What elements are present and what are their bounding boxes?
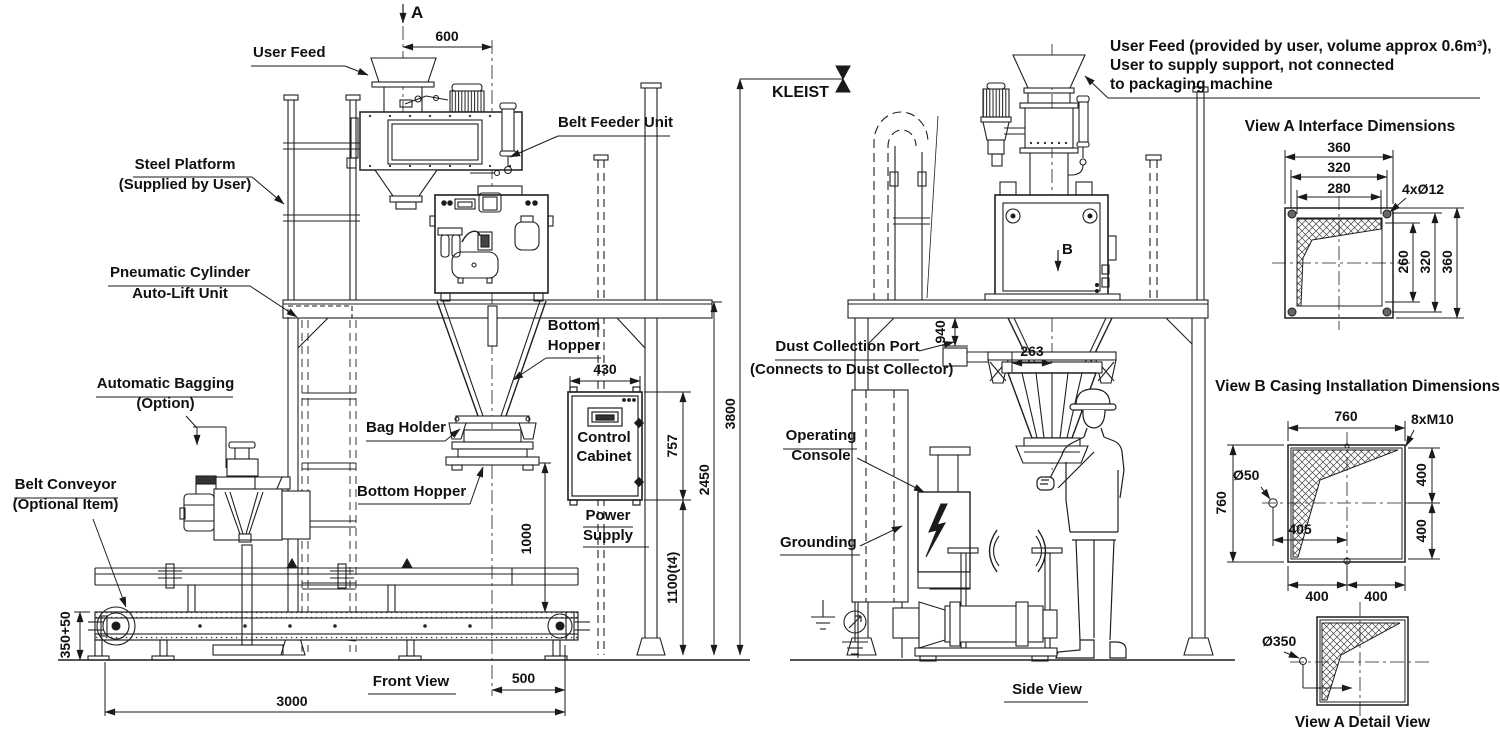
label-control-cabinet-2: Cabinet: [572, 449, 636, 466]
label-belt-feeder-unit: Belt Feeder Unit: [558, 115, 673, 132]
view-a-dim-320-right: 320: [1418, 232, 1434, 292]
dim-2450: 2450: [697, 440, 713, 520]
view-b-dim-bolt-holes: 8xM10: [1411, 412, 1454, 428]
view-a-dim-360-right: 360: [1440, 232, 1456, 292]
dim-263: 263: [1014, 344, 1050, 360]
section-marker-b: B: [1062, 242, 1073, 259]
view-b-dim-400-bl: 400: [1297, 589, 1337, 605]
label-pneumatic-1: Pneumatic Cylinder: [105, 265, 255, 282]
section-marker-a: A: [411, 3, 423, 22]
view-b-dim-760-left: 760: [1214, 473, 1230, 533]
front-view-caption: Front View: [366, 674, 456, 691]
dim-3000: 3000: [262, 694, 322, 710]
view-b-title: View B Casing Installation Dimensions: [1215, 378, 1500, 395]
view-a-dim-320-top: 320: [1319, 160, 1359, 176]
label-power-supply-2: Supply: [580, 528, 636, 545]
detail-dim-350: Ø350: [1262, 634, 1296, 650]
label-control-cabinet-1: Control: [572, 430, 636, 447]
view-b-dim-400-lower: 400: [1414, 501, 1430, 561]
dim-350-50: 350+50: [58, 595, 74, 675]
label-operating-console-1: Operating: [783, 428, 859, 445]
view-b-dim-400-br: 400: [1356, 589, 1396, 605]
label-steel-platform-2: (Supplied by User): [110, 177, 260, 194]
label-bottom-hopper-upper-2: Hopper: [546, 338, 602, 355]
dim-430: 430: [585, 362, 625, 378]
label-grounding: Grounding: [780, 535, 857, 552]
view-b-dim-400-upper: 400: [1414, 445, 1430, 505]
label-auto-bagging-1: Automatic Bagging: [93, 376, 238, 393]
view-b-dim-hole-dia: Ø50: [1233, 468, 1259, 484]
side-view-caption: Side View: [1004, 682, 1090, 699]
user-feed-note-3: to packaging machine: [1110, 76, 1273, 93]
view-b-dim-760-top: 760: [1326, 409, 1366, 425]
label-steel-platform-1: Steel Platform: [110, 157, 260, 174]
dim-1100: 1100(t4): [665, 538, 681, 618]
dim-600: 600: [427, 29, 467, 45]
view-a-dim-360-top: 360: [1319, 140, 1359, 156]
view-a-dim-260: 260: [1396, 232, 1412, 292]
drawing-sheet: A 600 User Feed Steel Platform (Supplied…: [0, 0, 1500, 738]
view-a-dim-280: 280: [1319, 181, 1359, 197]
label-pneumatic-2: Auto-Lift Unit: [105, 286, 255, 303]
dim-940: 940: [933, 302, 949, 362]
label-power-supply-1: Power: [580, 508, 636, 525]
user-feed-note-1: User Feed (provided by user, volume appr…: [1110, 38, 1492, 55]
label-bag-holder: Bag Holder: [366, 420, 446, 437]
label-bottom-hopper-upper-1: Bottom: [546, 318, 602, 335]
dim-757: 757: [665, 406, 681, 486]
label-bottom-hopper-lower: Bottom Hopper: [357, 484, 466, 501]
view-a-dim-bolt-holes: 4xØ12: [1402, 182, 1444, 198]
label-belt-conveyor-1: Belt Conveyor: [8, 477, 123, 494]
user-feed-note-2: User to supply support, not connected: [1110, 57, 1394, 74]
label-dust-port-1: Dust Collection Port: [775, 339, 920, 356]
label-operating-console-2: Console: [783, 448, 859, 465]
label-auto-bagging-2: (Option): [93, 396, 238, 413]
elevation-marker-kleist: KLEIST: [772, 84, 829, 102]
view-a-title: View A Interface Dimensions: [1240, 118, 1460, 135]
label-dust-port-2: (Connects to Dust Collector): [750, 362, 950, 379]
view-a-detail-title: View A Detail View: [1290, 714, 1435, 731]
dim-1000: 1000: [519, 499, 535, 579]
view-b-dim-405: 405: [1282, 522, 1318, 538]
dim-500: 500: [496, 671, 551, 687]
dim-3800: 3800: [723, 374, 739, 454]
label-belt-conveyor-2: (Optional Item): [8, 497, 123, 514]
label-user-feed: User Feed: [253, 45, 326, 62]
